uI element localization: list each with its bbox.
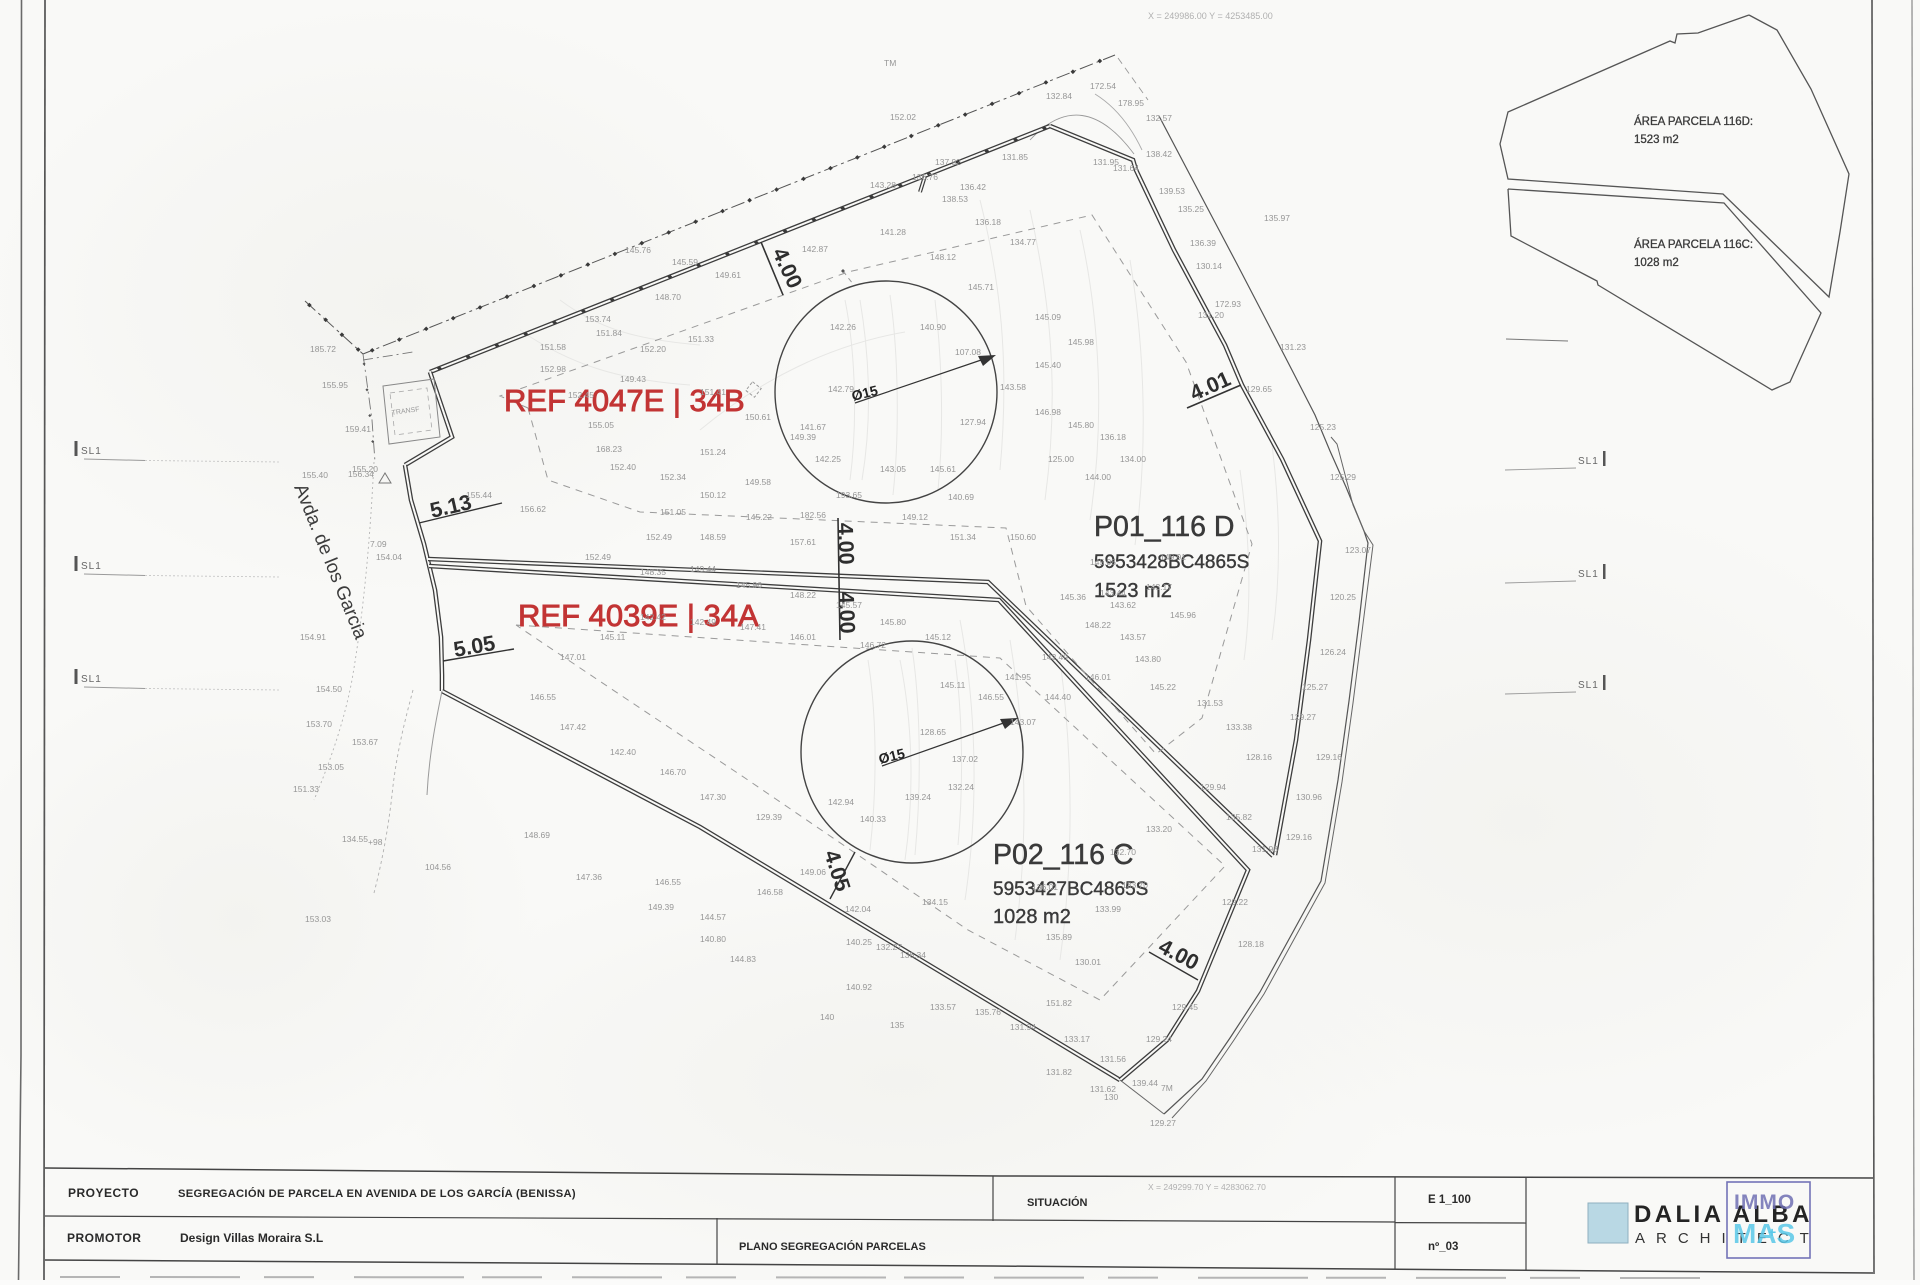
- svg-text:193.65: 193.65: [836, 490, 862, 500]
- svg-text:145.96: 145.96: [1170, 610, 1196, 620]
- svg-text:146.98: 146.98: [1035, 407, 1061, 417]
- svg-text:145.80: 145.80: [880, 617, 906, 627]
- svg-text:149.39: 149.39: [790, 432, 816, 442]
- svg-text:143.58: 143.58: [1000, 382, 1026, 392]
- svg-text:nº_03: nº_03: [1428, 1241, 1458, 1253]
- svg-text:147.30: 147.30: [700, 792, 726, 802]
- svg-text:152.40: 152.40: [610, 462, 636, 472]
- svg-text:148.35: 148.35: [640, 567, 666, 577]
- svg-text:153.67: 153.67: [352, 737, 378, 747]
- svg-text:144.00: 144.00: [1085, 472, 1111, 482]
- svg-text:153.74: 153.74: [585, 314, 611, 324]
- svg-text:139.24: 139.24: [905, 792, 931, 802]
- svg-text:148.22: 148.22: [1085, 620, 1111, 630]
- svg-text:129.45: 129.45: [1172, 1002, 1198, 1012]
- svg-text:149.91: 149.91: [1160, 552, 1186, 562]
- svg-text:147.41: 147.41: [740, 622, 766, 632]
- svg-text:SL1: SL1: [81, 674, 102, 685]
- svg-text:131.82: 131.82: [1046, 1067, 1072, 1077]
- svg-text:120.25: 120.25: [1330, 592, 1356, 602]
- svg-text:131.56: 131.56: [1100, 1054, 1126, 1064]
- svg-text:142.40: 142.40: [610, 747, 636, 757]
- svg-text:145.22: 145.22: [1150, 682, 1176, 692]
- svg-text:125.29: 125.29: [1330, 472, 1356, 482]
- svg-text:149.43: 149.43: [620, 374, 646, 384]
- svg-text:SEGREGACIÓN DE PARCELA EN AVEN: SEGREGACIÓN DE PARCELA EN AVENIDA DE LOS…: [178, 1187, 576, 1200]
- svg-text:155.20: 155.20: [352, 464, 378, 474]
- svg-text:135.89: 135.89: [1046, 932, 1072, 942]
- svg-text:145.61: 145.61: [930, 464, 956, 474]
- svg-text:152.49: 152.49: [585, 552, 611, 562]
- svg-text:140.33: 140.33: [860, 814, 886, 824]
- svg-text:148.22: 148.22: [790, 590, 816, 600]
- svg-text:148.69: 148.69: [524, 830, 550, 840]
- svg-text:1028 m2: 1028 m2: [993, 906, 1071, 928]
- svg-text:150.60: 150.60: [1010, 532, 1036, 542]
- svg-text:133.38: 133.38: [1226, 722, 1252, 732]
- svg-text:129.39: 129.39: [756, 812, 782, 822]
- svg-text:150.61: 150.61: [745, 412, 771, 422]
- svg-text:SL1: SL1: [1578, 456, 1599, 467]
- svg-text:7M: 7M: [1161, 1083, 1173, 1093]
- svg-text:152.98: 152.98: [540, 364, 566, 374]
- svg-text:151.58: 151.58: [540, 342, 566, 352]
- svg-text:145.59: 145.59: [672, 257, 698, 267]
- svg-text:129.22: 129.22: [1222, 897, 1248, 907]
- svg-text:136.01: 136.01: [1032, 882, 1058, 892]
- svg-text:130: 130: [1104, 1092, 1118, 1102]
- svg-text:123.07: 123.07: [1345, 545, 1371, 555]
- svg-text:135.82: 135.82: [1226, 812, 1252, 822]
- svg-text:104.56: 104.56: [425, 862, 451, 872]
- svg-text:155.44: 155.44: [466, 490, 492, 500]
- svg-text:143.80: 143.80: [1135, 654, 1161, 664]
- svg-text:144.57: 144.57: [700, 912, 726, 922]
- svg-text:142.26: 142.26: [830, 322, 856, 332]
- svg-text:153.03: 153.03: [305, 914, 331, 924]
- svg-text:138.53: 138.53: [942, 194, 968, 204]
- svg-text:145.12: 145.12: [925, 632, 951, 642]
- svg-text:129.24: 129.24: [1146, 1034, 1172, 1044]
- svg-text:129.27: 129.27: [1290, 712, 1316, 722]
- svg-text:SL1: SL1: [81, 561, 102, 572]
- svg-text:151.05: 151.05: [660, 507, 686, 517]
- svg-text:145.05: 145.05: [1090, 557, 1116, 567]
- svg-text:129.16: 129.16: [1286, 832, 1312, 842]
- svg-text:155.40: 155.40: [302, 470, 328, 480]
- svg-text:146.58: 146.58: [757, 887, 783, 897]
- svg-text:135.25: 135.25: [1178, 204, 1204, 214]
- svg-text:145.96: 145.96: [736, 580, 762, 590]
- svg-text:146.01: 146.01: [790, 632, 816, 642]
- svg-text:ÁREA PARCELA 116D:: ÁREA PARCELA 116D:: [1634, 115, 1753, 128]
- svg-text:137.92: 137.92: [935, 157, 961, 167]
- svg-text:142.25: 142.25: [815, 454, 841, 464]
- svg-text:146.01: 146.01: [1085, 672, 1111, 682]
- svg-text:136.76: 136.76: [912, 172, 938, 182]
- svg-text:134.00: 134.00: [1120, 454, 1146, 464]
- svg-text:146.55: 146.55: [530, 692, 556, 702]
- svg-text:149.39: 149.39: [648, 902, 674, 912]
- svg-text:ÁREA PARCELA 116C:: ÁREA PARCELA 116C:: [1634, 238, 1753, 251]
- svg-text:152.49: 152.49: [646, 532, 672, 542]
- svg-text:143.57: 143.57: [1120, 632, 1146, 642]
- svg-text:141.95: 141.95: [1005, 672, 1031, 682]
- svg-text:148.59: 148.59: [700, 532, 726, 542]
- svg-text:168.23: 168.23: [596, 444, 622, 454]
- svg-text:150.12: 150.12: [700, 490, 726, 500]
- svg-text:4.00: 4.00: [834, 591, 859, 634]
- svg-text:140.80: 140.80: [700, 934, 726, 944]
- svg-text:140: 140: [820, 1012, 834, 1022]
- svg-text:148.70: 148.70: [655, 292, 681, 302]
- svg-text:144.40: 144.40: [1045, 692, 1071, 702]
- svg-text:138.42: 138.42: [1146, 149, 1172, 159]
- svg-text:7.09: 7.09: [370, 539, 387, 549]
- svg-text:1523 m2: 1523 m2: [1634, 134, 1679, 146]
- svg-text:153.05: 153.05: [318, 762, 344, 772]
- svg-text:145.11: 145.11: [600, 632, 626, 642]
- svg-text:141.67: 141.67: [800, 422, 826, 432]
- svg-text:154.50: 154.50: [316, 684, 342, 694]
- svg-text:P01_116 D: P01_116 D: [1094, 511, 1235, 543]
- svg-text:157.61: 157.61: [790, 537, 816, 547]
- svg-text:SL1: SL1: [81, 446, 102, 457]
- svg-text:135.97: 135.97: [1264, 213, 1290, 223]
- svg-text:182.56: 182.56: [800, 510, 826, 520]
- svg-text:+: +: [1768, 1224, 1776, 1240]
- svg-text:151.34: 151.34: [950, 532, 976, 542]
- svg-text:145.98: 145.98: [1068, 337, 1094, 347]
- svg-text:131.98: 131.98: [1252, 844, 1278, 854]
- svg-text:185.72: 185.72: [310, 344, 336, 354]
- svg-text:152.45: 152.45: [568, 390, 594, 400]
- svg-text:PROYECTO: PROYECTO: [68, 1186, 139, 1200]
- svg-text:147.42: 147.42: [560, 722, 586, 732]
- svg-text:172.54: 172.54: [1090, 81, 1116, 91]
- svg-text:142.42: 142.42: [640, 612, 666, 622]
- svg-text:151.41: 151.41: [700, 387, 726, 397]
- svg-text:130.01: 130.01: [1075, 957, 1101, 967]
- svg-text:142.04: 142.04: [845, 904, 871, 914]
- svg-text:142.49: 142.49: [690, 617, 716, 627]
- svg-text:135: 135: [890, 1020, 904, 1030]
- svg-text:130.14: 130.14: [1196, 261, 1222, 271]
- svg-text:131.20: 131.20: [1198, 310, 1224, 320]
- svg-text:142.79: 142.79: [828, 384, 854, 394]
- svg-text:131.85: 131.85: [1002, 152, 1028, 162]
- svg-text:145.71: 145.71: [968, 282, 994, 292]
- svg-text:145.09: 145.09: [1035, 312, 1061, 322]
- svg-text:129.27: 129.27: [1150, 1118, 1176, 1128]
- svg-text:132.27: 132.27: [876, 942, 902, 952]
- svg-text:151.84: 151.84: [596, 328, 622, 338]
- svg-text:146.55: 146.55: [655, 877, 681, 887]
- svg-text:143.05: 143.05: [880, 464, 906, 474]
- svg-text:4.00: 4.00: [833, 522, 858, 565]
- svg-text:147.01: 147.01: [560, 652, 586, 662]
- svg-text:134.77: 134.77: [1010, 237, 1036, 247]
- svg-text:X = 249299.70 Y = 4283062.70: X = 249299.70 Y = 4283062.70: [1148, 1182, 1266, 1192]
- svg-text:132.70: 132.70: [1110, 847, 1136, 857]
- svg-text:137.02: 137.02: [952, 754, 978, 764]
- svg-text:132.84: 132.84: [1046, 91, 1072, 101]
- svg-text:143.28: 143.28: [870, 180, 896, 190]
- svg-text:107.08: 107.08: [955, 347, 981, 357]
- svg-text:131.23: 131.23: [1280, 342, 1306, 352]
- svg-text:SITUACIÓN: SITUACIÓN: [1027, 1196, 1088, 1209]
- svg-text:145.11: 145.11: [940, 680, 966, 690]
- svg-text:MAS: MAS: [1733, 1218, 1795, 1249]
- svg-text:SL1: SL1: [1578, 680, 1599, 691]
- svg-text:143.44: 143.44: [1100, 588, 1126, 598]
- svg-text:149.61: 149.61: [715, 270, 741, 280]
- svg-text:159.41: 159.41: [345, 424, 371, 434]
- svg-text:129.94: 129.94: [1200, 782, 1226, 792]
- svg-text:133.17: 133.17: [1064, 1034, 1090, 1044]
- svg-text:134.55: 134.55: [342, 834, 368, 844]
- svg-text:132.24: 132.24: [948, 782, 974, 792]
- svg-text:149.12: 149.12: [902, 512, 928, 522]
- svg-text:128.18: 128.18: [1238, 939, 1264, 949]
- svg-text:129.16: 129.16: [1316, 752, 1342, 762]
- svg-text:136.42: 136.42: [960, 182, 986, 192]
- svg-text:142.87: 142.87: [802, 244, 828, 254]
- svg-text:PROMOTOR: PROMOTOR: [67, 1231, 141, 1245]
- svg-text:IMMO: IMMO: [1734, 1191, 1795, 1214]
- svg-text:156.62: 156.62: [520, 504, 546, 514]
- svg-text:140.25: 140.25: [846, 937, 872, 947]
- svg-text:140.92: 140.92: [846, 982, 872, 992]
- svg-text:152.20: 152.20: [640, 344, 666, 354]
- svg-text:172.93: 172.93: [1215, 299, 1241, 309]
- svg-text:151.82: 151.82: [1046, 998, 1072, 1008]
- svg-text:+98: +98: [368, 837, 383, 847]
- svg-text:125.23: 125.23: [1310, 422, 1336, 432]
- svg-text:151.24: 151.24: [700, 447, 726, 457]
- svg-text:133.99: 133.99: [1095, 904, 1121, 914]
- svg-text:TM: TM: [884, 58, 896, 68]
- svg-text:136.18: 136.18: [1100, 432, 1126, 442]
- svg-text:125.00: 125.00: [1048, 454, 1074, 464]
- svg-text:134.15: 134.15: [922, 897, 948, 907]
- svg-text:151.33: 151.33: [688, 334, 714, 344]
- svg-text:136.18: 136.18: [975, 217, 1001, 227]
- svg-text:126.24: 126.24: [1320, 647, 1346, 657]
- svg-text:178.95: 178.95: [1118, 98, 1144, 108]
- svg-text:154.04: 154.04: [376, 552, 402, 562]
- svg-text:153.70: 153.70: [306, 719, 332, 729]
- svg-text:132.57: 132.57: [1146, 113, 1172, 123]
- svg-text:Design Villas Moraira S.L: Design Villas Moraira S.L: [180, 1231, 323, 1245]
- svg-text:139.44: 139.44: [1132, 1078, 1158, 1088]
- svg-text:152.02: 152.02: [890, 112, 916, 122]
- svg-text:X = 249986.00 Y = 4253485.00: X = 249986.00 Y = 4253485.00: [1148, 11, 1273, 21]
- svg-text:147.36: 147.36: [576, 872, 602, 882]
- svg-text:143.17: 143.17: [1146, 582, 1172, 592]
- svg-text:131.53: 131.53: [1197, 698, 1223, 708]
- svg-text:136.39: 136.39: [1190, 238, 1216, 248]
- svg-text:127.94: 127.94: [960, 417, 986, 427]
- svg-text:128.16: 128.16: [1246, 752, 1272, 762]
- svg-text:155.95: 155.95: [322, 380, 348, 390]
- svg-text:1028 m2: 1028 m2: [1634, 257, 1679, 269]
- svg-text:154.91: 154.91: [300, 632, 326, 642]
- svg-text:129.65: 129.65: [1246, 384, 1272, 394]
- svg-text:141.28: 141.28: [880, 227, 906, 237]
- svg-text:140.90: 140.90: [920, 322, 946, 332]
- svg-text:145.80: 145.80: [1068, 420, 1094, 430]
- svg-text:143.62: 143.62: [1110, 600, 1136, 610]
- svg-text:136.34: 136.34: [900, 950, 926, 960]
- svg-text:133.20: 133.20: [1146, 824, 1172, 834]
- svg-text:148.12: 148.12: [930, 252, 956, 262]
- svg-text:E 1_100: E 1_100: [1428, 1194, 1471, 1206]
- svg-text:REF 4039E | 34A: REF 4039E | 34A: [518, 598, 759, 633]
- svg-text:151.33: 151.33: [293, 784, 319, 794]
- svg-text:149.44: 149.44: [690, 564, 716, 574]
- svg-text:152.34: 152.34: [660, 472, 686, 482]
- svg-text:155.05: 155.05: [588, 420, 614, 430]
- svg-text:125.27: 125.27: [1302, 682, 1328, 692]
- svg-text:131.64: 131.64: [1113, 163, 1139, 173]
- svg-text:PLANO SEGREGACIÓN PARCELAS: PLANO SEGREGACIÓN PARCELAS: [739, 1240, 926, 1253]
- svg-text:145.36: 145.36: [1060, 592, 1086, 602]
- svg-text:149.06: 149.06: [800, 867, 826, 877]
- svg-text:146.72: 146.72: [860, 640, 886, 650]
- svg-text:135.76: 135.76: [975, 1007, 1001, 1017]
- svg-text:131.94: 131.94: [1010, 1022, 1036, 1032]
- svg-text:145.22: 145.22: [746, 512, 772, 522]
- svg-text:140.69: 140.69: [948, 492, 974, 502]
- svg-text:128.65: 128.65: [920, 727, 946, 737]
- svg-text:146.70: 146.70: [660, 767, 686, 777]
- svg-text:145.76: 145.76: [625, 245, 651, 255]
- svg-text:130.96: 130.96: [1296, 792, 1322, 802]
- svg-text:145.57: 145.57: [836, 600, 862, 610]
- svg-text:142.49: 142.49: [1042, 652, 1068, 662]
- svg-text:139.53: 139.53: [1159, 186, 1185, 196]
- svg-text:142.94: 142.94: [828, 797, 854, 807]
- svg-text:133.57: 133.57: [930, 1002, 956, 1012]
- svg-text:143.07: 143.07: [1010, 717, 1036, 727]
- svg-text:SL1: SL1: [1578, 569, 1599, 580]
- svg-text:133.70: 133.70: [1122, 880, 1148, 890]
- svg-text:149.58: 149.58: [745, 477, 771, 487]
- svg-text:145.40: 145.40: [1035, 360, 1061, 370]
- svg-text:146.55: 146.55: [978, 692, 1004, 702]
- svg-text:144.83: 144.83: [730, 954, 756, 964]
